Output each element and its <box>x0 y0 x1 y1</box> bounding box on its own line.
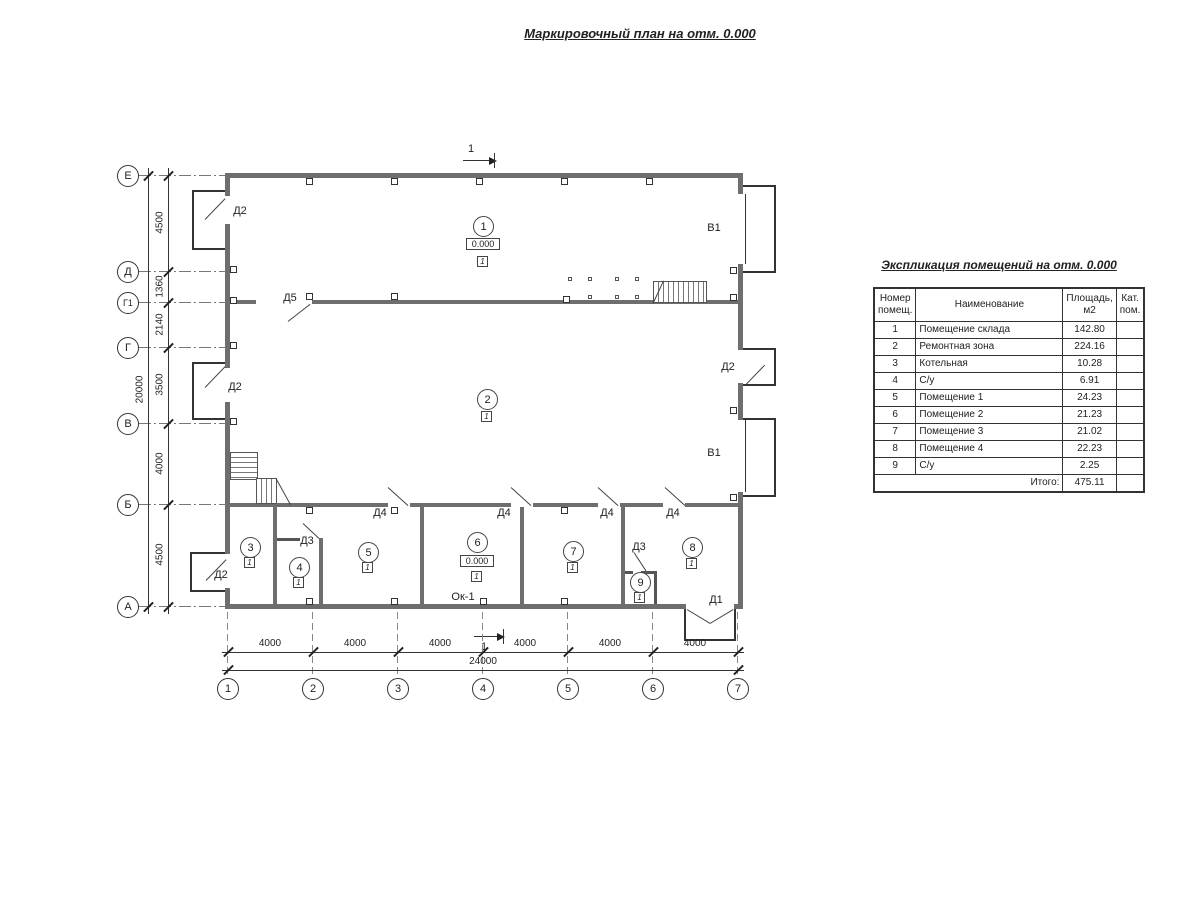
door-swing-d5 <box>288 304 311 322</box>
cell-cat <box>1116 441 1144 458</box>
cell-cat <box>1116 424 1144 441</box>
door-label-d2-right: Д2 <box>715 361 741 373</box>
category-box-room3: 1 <box>244 557 255 568</box>
cell-cat <box>1116 458 1144 475</box>
column-marker <box>391 598 398 605</box>
wall-right-seg2 <box>738 264 743 350</box>
axis-line-d <box>139 271 226 272</box>
axis-circle-1: 1 <box>217 678 239 700</box>
column-marker <box>561 598 568 605</box>
door-label-d5: Д5 <box>277 292 303 304</box>
column-marker <box>561 178 568 185</box>
category-box-room2: 1 <box>481 411 492 422</box>
table-row: 1 Помещение склада 142.80 <box>874 322 1144 339</box>
door-label-d2-middle: Д2 <box>222 381 248 393</box>
column-marker <box>306 598 313 605</box>
room-marker-2: 2 <box>477 389 498 410</box>
dim-label-bottom-6: 4000 <box>675 638 715 649</box>
room-marker-3: 3 <box>240 537 261 558</box>
dim-label-left-6: 4500 <box>155 533 166 577</box>
cell-name: Помещение 4 <box>916 441 1063 458</box>
column-marker <box>306 178 313 185</box>
cell-name: Котельная <box>916 356 1063 373</box>
dim-label-bottom-2: 4000 <box>335 638 375 649</box>
table-row: 5 Помещение 1 24.23 <box>874 390 1144 407</box>
cell-name: С/у <box>916 373 1063 390</box>
dim-label-bottom-total: 24000 <box>458 656 508 667</box>
gate-v1-top-leaf <box>745 194 746 264</box>
category-box-room4: 1 <box>293 577 304 588</box>
door-label-d4-1: Д4 <box>367 507 393 519</box>
table-total-row: Итого: 475.11 <box>874 475 1144 493</box>
axis-ext-2 <box>312 612 313 677</box>
room-marker-6: 6 <box>467 532 488 553</box>
bumpout-right-bottom <box>743 418 776 497</box>
cell-cat <box>1116 475 1144 493</box>
plan-title: Маркировочный план на отм. 0.000 <box>500 26 780 41</box>
axis-line-g <box>139 347 226 348</box>
column-marker <box>563 296 570 303</box>
door-swing-d3-room9 <box>634 552 647 571</box>
category-box-room9: 1 <box>634 592 645 603</box>
dim-label-bottom-3: 4000 <box>420 638 460 649</box>
room-marker-1: 1 <box>473 216 494 237</box>
wall-top <box>225 173 743 178</box>
header-category: Кат. пом. <box>1116 288 1144 322</box>
cell-area: 6.91 <box>1063 373 1116 390</box>
axis-circle-a: А <box>117 596 139 618</box>
column-marker <box>230 418 237 425</box>
partition-room7-8 <box>621 507 625 604</box>
table-row: 3 Котельная 10.28 <box>874 356 1144 373</box>
porch-left-top <box>192 190 225 250</box>
wall-left-seg1 <box>225 173 230 196</box>
cell-area: 224.16 <box>1063 339 1116 356</box>
cell-name: С/у <box>916 458 1063 475</box>
axis-line-v <box>139 423 226 424</box>
cell-cat <box>1116 339 1144 356</box>
level-mark-room6: 0.000 <box>460 555 494 567</box>
explication-table: Номер помещ. Наименование Площадь, м2 Ка… <box>873 287 1145 493</box>
cell-area: 22.23 <box>1063 441 1116 458</box>
axis-line-b <box>139 504 226 505</box>
cell-num: 1 <box>874 322 916 339</box>
cell-name: Помещение 2 <box>916 407 1063 424</box>
cell-area: 2.25 <box>1063 458 1116 475</box>
stairs-left-lower <box>256 478 277 504</box>
wall-b-seg4 <box>620 503 663 507</box>
wall-right-seg3 <box>738 383 743 420</box>
axis-circle-g: Г <box>117 337 139 359</box>
door-swing-d4-room8 <box>665 487 686 506</box>
room9-wall-top-a <box>625 571 633 574</box>
table-row: 6 Помещение 2 21.23 <box>874 407 1144 424</box>
footing-dot <box>568 277 572 281</box>
partition-room3-4 <box>273 507 277 604</box>
cell-num: 9 <box>874 458 916 475</box>
column-marker <box>306 293 313 300</box>
cell-name: Помещение склада <box>916 322 1063 339</box>
door-label-d3-room9: Д3 <box>626 541 652 553</box>
cell-area: 21.23 <box>1063 407 1116 424</box>
partition-room5-6 <box>420 507 424 604</box>
drawing-sheet: Маркировочный план на отм. 0.000 <box>0 0 1200 900</box>
door-swing-d4-room6 <box>511 487 532 506</box>
gate-v1-bottom-leaf <box>745 420 746 492</box>
cell-num: 2 <box>874 339 916 356</box>
column-marker <box>230 297 237 304</box>
cell-cat <box>1116 407 1144 424</box>
category-box-room6: 1 <box>471 571 482 582</box>
footing-dot <box>615 295 619 299</box>
door-label-d1: Д1 <box>703 594 729 606</box>
column-marker <box>391 178 398 185</box>
column-marker <box>730 267 737 274</box>
header-area: Площадь, м2 <box>1063 288 1116 322</box>
section-mark-top-tick <box>494 153 495 168</box>
table-row: 4 С/у 6.91 <box>874 373 1144 390</box>
door-label-d3-room4: Д3 <box>294 535 320 547</box>
column-marker <box>561 507 568 514</box>
cell-num: 3 <box>874 356 916 373</box>
dim-line-left-total <box>148 168 149 614</box>
cell-cat <box>1116 322 1144 339</box>
total-value: 475.11 <box>1063 475 1116 493</box>
column-marker <box>730 407 737 414</box>
axis-ext-6 <box>652 612 653 677</box>
axis-circle-g1: Г1 <box>117 292 139 314</box>
dim-label-left-total: 20000 <box>135 368 146 412</box>
axis-line-e <box>139 175 226 176</box>
axis-line-a <box>139 606 226 607</box>
column-marker <box>306 507 313 514</box>
cell-num: 8 <box>874 441 916 458</box>
door-label-d4-4: Д4 <box>660 507 686 519</box>
cell-area: 10.28 <box>1063 356 1116 373</box>
header-number: Номер помещ. <box>874 288 916 322</box>
partition-room6-7 <box>520 507 524 604</box>
stairs-left-upper <box>230 452 258 480</box>
category-box-room8: 1 <box>686 558 697 569</box>
footing-dot <box>635 277 639 281</box>
category-box-room7: 1 <box>567 562 578 573</box>
axis-circle-b: Б <box>117 494 139 516</box>
room-marker-8: 8 <box>682 537 703 558</box>
window-label-ok1: Ок-1 <box>446 591 480 603</box>
wall-right-seg4 <box>738 492 743 609</box>
dim-label-bottom-1: 4000 <box>250 638 290 649</box>
cell-cat <box>1116 373 1144 390</box>
table-row: 9 С/у 2.25 <box>874 458 1144 475</box>
room-marker-4: 4 <box>289 557 310 578</box>
table-row: 8 Помещение 4 22.23 <box>874 441 1144 458</box>
column-marker <box>230 342 237 349</box>
column-marker <box>646 178 653 185</box>
dim-line-bottom-total <box>222 670 744 671</box>
footing-dot <box>588 277 592 281</box>
bumpout-right-top <box>743 185 776 273</box>
total-label: Итого: <box>874 475 1063 493</box>
level-mark-room1: 0.000 <box>466 238 500 250</box>
cell-name: Ремонтная зона <box>916 339 1063 356</box>
section-mark-top-label: 1 <box>468 143 474 155</box>
axis-circle-d: Д <box>117 261 139 283</box>
dim-line-left-segments <box>168 168 169 614</box>
cell-area: 24.23 <box>1063 390 1116 407</box>
axis-ext-3 <box>397 612 398 677</box>
section-mark-top-arrow <box>489 157 497 165</box>
table-row: 2 Ремонтная зона 224.16 <box>874 339 1144 356</box>
dim-label-left-3: 2140 <box>155 303 166 347</box>
axis-ext-4 <box>482 612 483 677</box>
axis-circle-e: Е <box>117 165 139 187</box>
cell-cat <box>1116 390 1144 407</box>
footing-dot <box>635 295 639 299</box>
category-box-room1: 1 <box>477 256 488 267</box>
room-marker-9: 9 <box>630 572 651 593</box>
cell-num: 5 <box>874 390 916 407</box>
section-mark-top-line <box>463 160 491 161</box>
column-marker <box>730 294 737 301</box>
porch-bottom-entry <box>684 609 736 641</box>
room-marker-5: 5 <box>358 542 379 563</box>
cell-name: Помещение 3 <box>916 424 1063 441</box>
cell-area: 21.02 <box>1063 424 1116 441</box>
section-mark-bottom-tick <box>503 629 504 644</box>
explication-title: Экспликация помещений на отм. 0.000 <box>873 258 1125 272</box>
dim-label-bottom-5: 4000 <box>590 638 630 649</box>
cell-cat <box>1116 356 1144 373</box>
dim-label-bottom-4: 4000 <box>505 638 545 649</box>
axis-circle-6: 6 <box>642 678 664 700</box>
door-swing-d4-room5 <box>388 487 409 506</box>
axis-circle-4: 4 <box>472 678 494 700</box>
cell-num: 4 <box>874 373 916 390</box>
column-marker <box>730 494 737 501</box>
wall-bottom-left-part <box>225 604 686 609</box>
column-marker <box>480 598 487 605</box>
category-box-room5: 1 <box>362 562 373 573</box>
door-label-d4-3: Д4 <box>594 507 620 519</box>
footing-dot <box>588 295 592 299</box>
dim-label-left-5: 4000 <box>155 442 166 486</box>
axis-circle-7: 7 <box>727 678 749 700</box>
header-name: Наименование <box>916 288 1063 322</box>
table-header-row: Номер помещ. Наименование Площадь, м2 Ка… <box>874 288 1144 322</box>
cell-num: 7 <box>874 424 916 441</box>
column-marker <box>230 266 237 273</box>
axis-circle-2: 2 <box>302 678 324 700</box>
door-label-d2-top: Д2 <box>227 205 253 217</box>
cell-num: 6 <box>874 407 916 424</box>
room9-wall-right <box>654 571 657 604</box>
axis-line-g1 <box>139 302 226 303</box>
dim-label-left-4: 3500 <box>155 363 166 407</box>
column-marker <box>391 293 398 300</box>
footing-dot <box>615 277 619 281</box>
door-label-d2-bottom: Д2 <box>208 569 234 581</box>
cell-name: Помещение 1 <box>916 390 1063 407</box>
room-marker-7: 7 <box>563 541 584 562</box>
partition-room4-5 <box>319 538 323 604</box>
door-swing-d4-room7 <box>598 487 619 506</box>
column-marker <box>476 178 483 185</box>
door-label-d4-2: Д4 <box>491 507 517 519</box>
dim-label-left-1: 4500 <box>155 201 166 245</box>
axis-circle-5: 5 <box>557 678 579 700</box>
axis-circle-3: 3 <box>387 678 409 700</box>
gate-label-v1-bottom: В1 <box>701 447 727 459</box>
table-row: 7 Помещение 3 21.02 <box>874 424 1144 441</box>
cell-area: 142.80 <box>1063 322 1116 339</box>
wall-b-seg5 <box>685 503 738 507</box>
gate-label-v1-top: В1 <box>701 222 727 234</box>
stairs-left-slope <box>276 478 291 505</box>
axis-ext-5 <box>567 612 568 677</box>
axis-circle-v: В <box>117 413 139 435</box>
